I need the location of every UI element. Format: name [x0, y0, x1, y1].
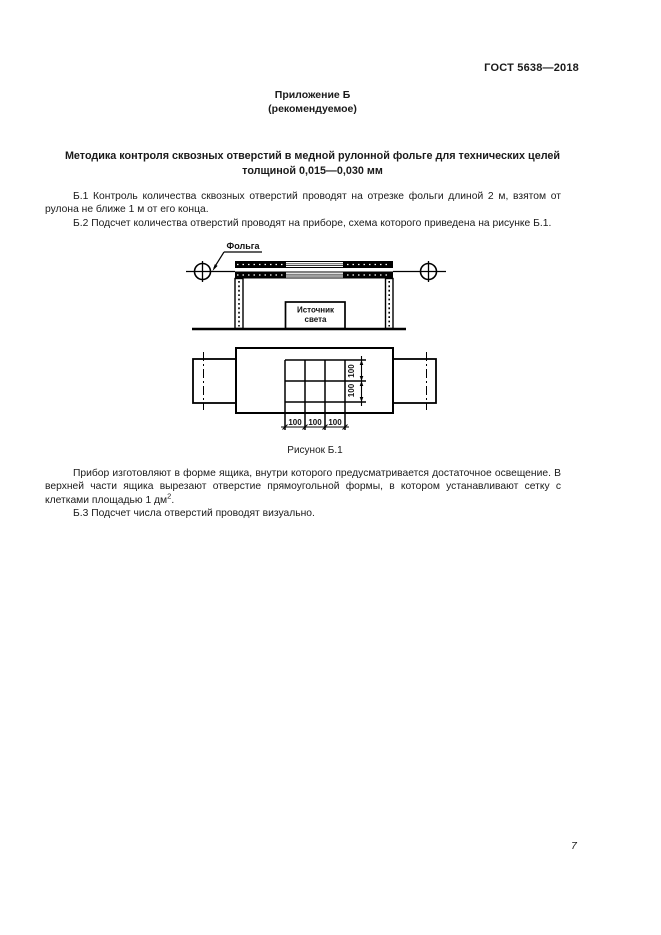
- top-view-right-roller: [393, 359, 436, 403]
- top-view-left-roller: [193, 359, 236, 403]
- section-title-line2: толщиной 0,015—0,030 мм: [45, 164, 580, 179]
- grid-column-dimensions: 100 100 100: [281, 418, 349, 430]
- appendix-note: (рекомендуемое): [45, 103, 580, 117]
- paragraph-b3: Б.3 Подсчет числа отверстий проводят виз…: [45, 507, 561, 520]
- appendix-label: Приложение Б: [45, 89, 580, 103]
- paragraphs-desc-b3: Прибор изготовляют в форме ящика, внутри…: [45, 467, 561, 521]
- col-dim-label-2: 100: [308, 418, 322, 427]
- figure-b1-drawing: Фольга: [160, 236, 480, 436]
- paragraph-apparatus-description: Прибор изготовляют в форме ящика, внутри…: [45, 467, 561, 507]
- document-code: ГОСТ 5638—2018: [484, 62, 579, 74]
- page-number: 7: [571, 840, 577, 852]
- appendix-heading: Приложение Б (рекомендуемое): [45, 89, 580, 116]
- box-right-wall: [386, 279, 394, 329]
- paragraphs-b1-b2: Б.1 Контроль количества сквозных отверст…: [45, 190, 561, 230]
- light-source-label-line1: Источник: [297, 306, 335, 315]
- foil-label: Фольга: [227, 241, 261, 251]
- paragraph-b2: Б.2 Подсчет количества отверстий проводя…: [45, 217, 561, 230]
- box-left-wall: [235, 279, 243, 329]
- leader-arrowhead-icon: [213, 264, 218, 271]
- light-source-box: Источник света: [286, 302, 346, 329]
- desc-tail: .: [171, 495, 174, 506]
- figure-caption: Рисунок Б.1: [45, 445, 585, 456]
- gost-document-page: ГОСТ 5638—2018 Приложение Б (рекомендуем…: [0, 0, 661, 935]
- apparatus-top-view: 100 100 100 100 100: [193, 348, 436, 430]
- desc-text: Прибор изготовляют в форме ящика, внутри…: [45, 468, 561, 506]
- row-dim-label-1: 100: [347, 364, 356, 378]
- light-source-label-line2: света: [305, 315, 328, 324]
- apparatus-side-view: Фольга: [186, 241, 446, 329]
- col-dim-label-3: 100: [328, 418, 342, 427]
- box-lid: [235, 261, 393, 279]
- col-dim-label-1: 100: [288, 418, 302, 427]
- row-dim-label-2: 100: [347, 383, 356, 397]
- paragraph-b1: Б.1 Контроль количества сквозных отверст…: [45, 190, 561, 217]
- section-title: Методика контроля сквозных отверстий в м…: [45, 149, 580, 179]
- section-title-line1: Методика контроля сквозных отверстий в м…: [45, 149, 580, 164]
